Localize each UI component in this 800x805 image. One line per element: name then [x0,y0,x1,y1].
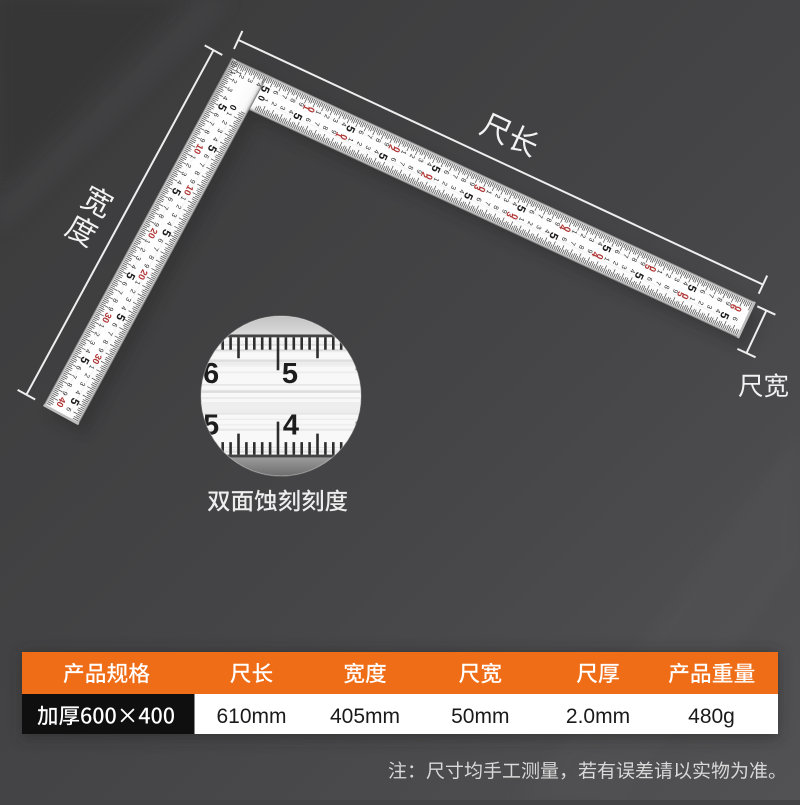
svg-text:4: 4 [283,410,299,442]
svg-text:2.0mm: 2.0mm [566,705,630,728]
svg-text:480g: 480g [688,705,735,728]
svg-text:405mm: 405mm [330,705,400,728]
svg-text:5: 5 [282,358,298,390]
svg-text:50mm: 50mm [451,705,509,728]
svg-text:610mm: 610mm [216,705,286,728]
